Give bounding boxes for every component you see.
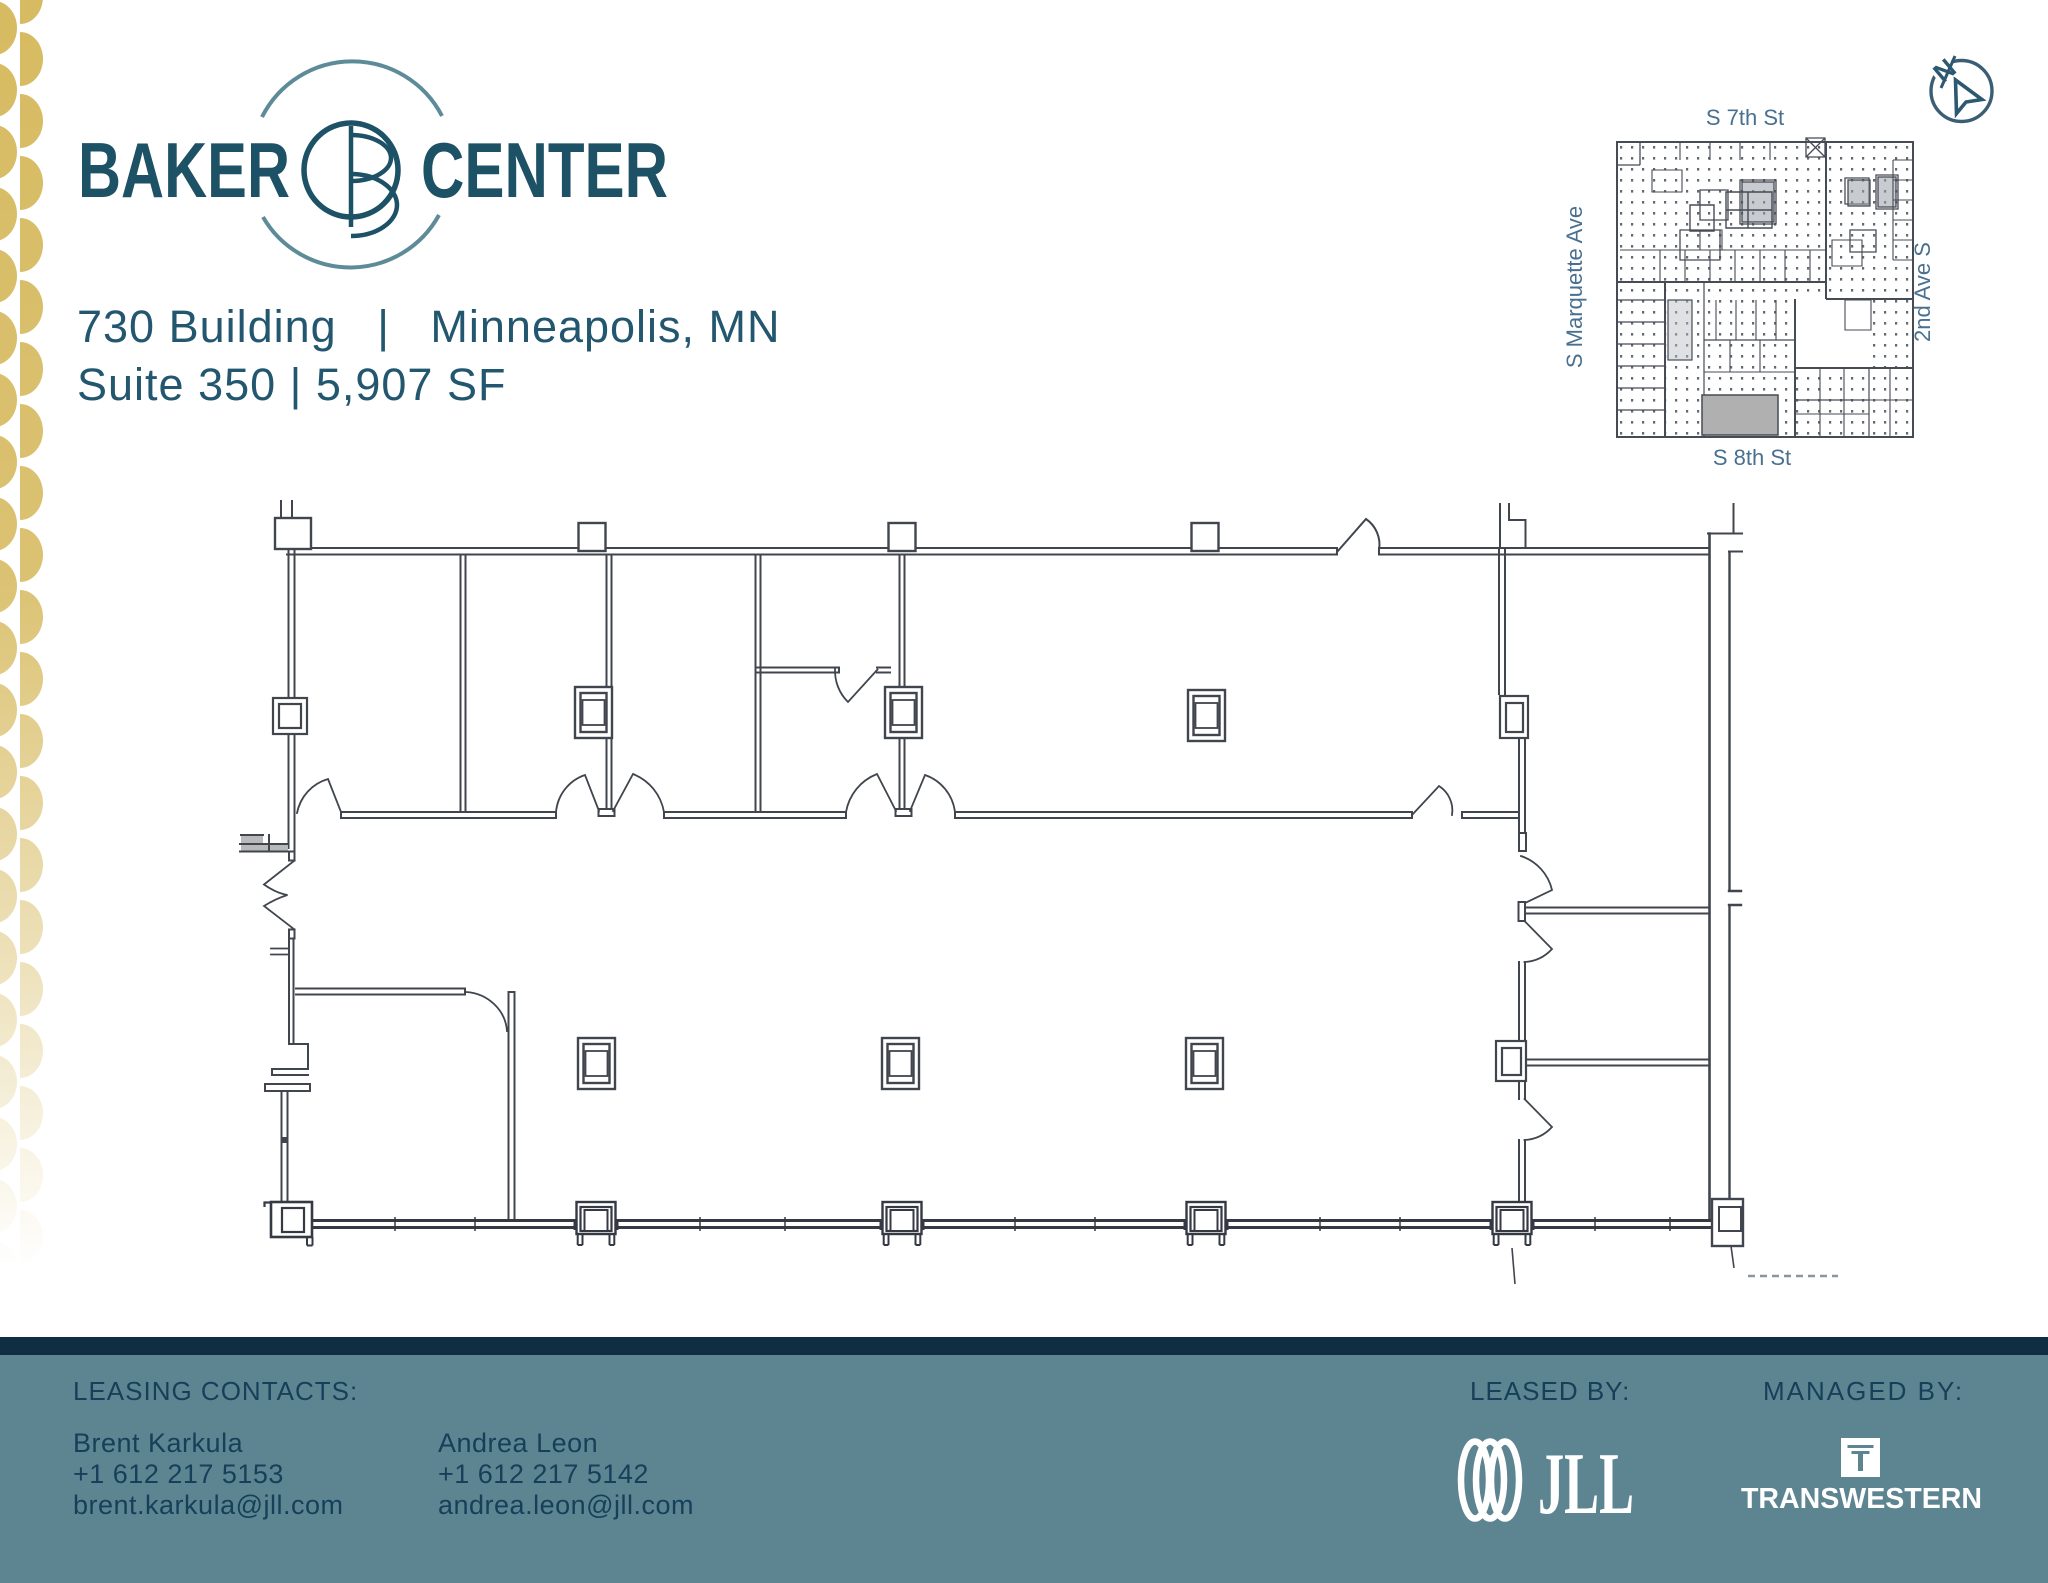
- svg-text:TRANSWESTERN: TRANSWESTERN: [1741, 1483, 1982, 1515]
- svg-text:JLL: JLL: [1538, 1436, 1634, 1530]
